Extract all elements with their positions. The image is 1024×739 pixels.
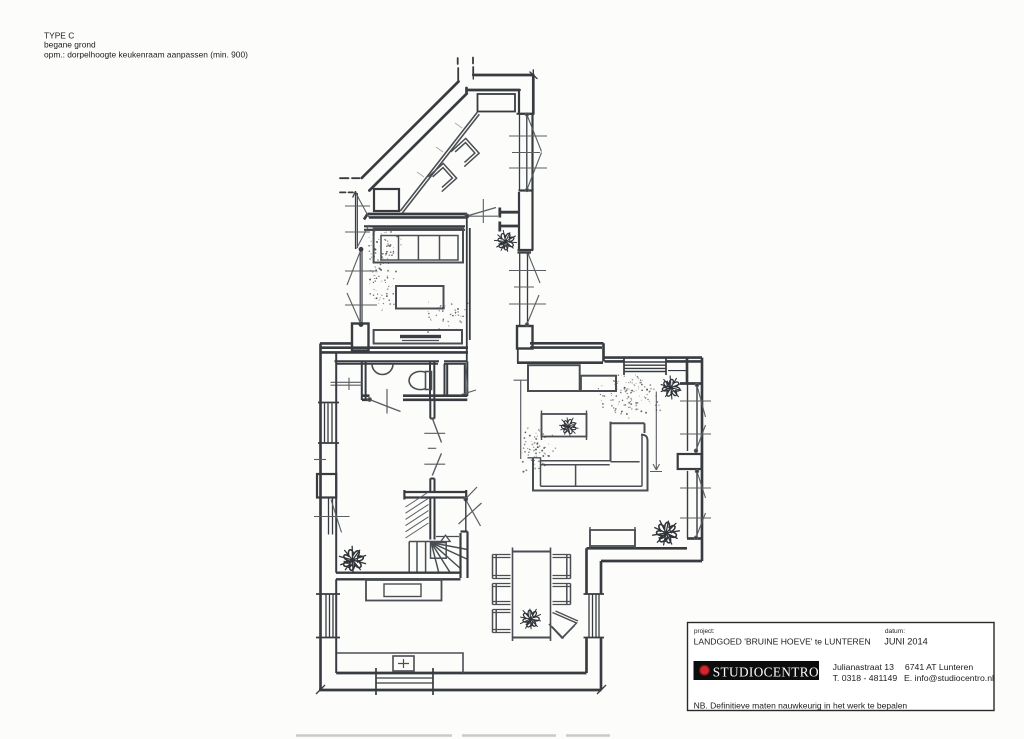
svg-text:project:: project:: [694, 628, 715, 635]
svg-text:6741 AT Lunteren: 6741 AT Lunteren: [905, 662, 973, 672]
svg-text:NB. Definitieve maten nauwkeur: NB. Definitieve maten nauwkeurig in het …: [694, 701, 908, 711]
svg-text:opm.: dorpelhoogte keukenraam: opm.: dorpelhoogte keukenraam aanpassen …: [44, 49, 248, 59]
svg-text:T. 0318 - 481149: T. 0318 - 481149: [833, 673, 898, 683]
svg-text:datum:: datum:: [885, 628, 905, 635]
svg-text:begane grond: begane grond: [44, 40, 96, 50]
svg-text:STUDIOCENTRO: STUDIOCENTRO: [713, 664, 819, 679]
svg-text:E. info@studiocentro.nl: E. info@studiocentro.nl: [904, 673, 994, 683]
svg-text:JUNI 2014: JUNI 2014: [884, 636, 927, 646]
svg-text:LANDGOED 'BRUINE HOEVE' te LUN: LANDGOED 'BRUINE HOEVE' te LUNTEREN: [694, 636, 871, 646]
svg-text:Julianastraat 13: Julianastraat 13: [833, 662, 895, 672]
